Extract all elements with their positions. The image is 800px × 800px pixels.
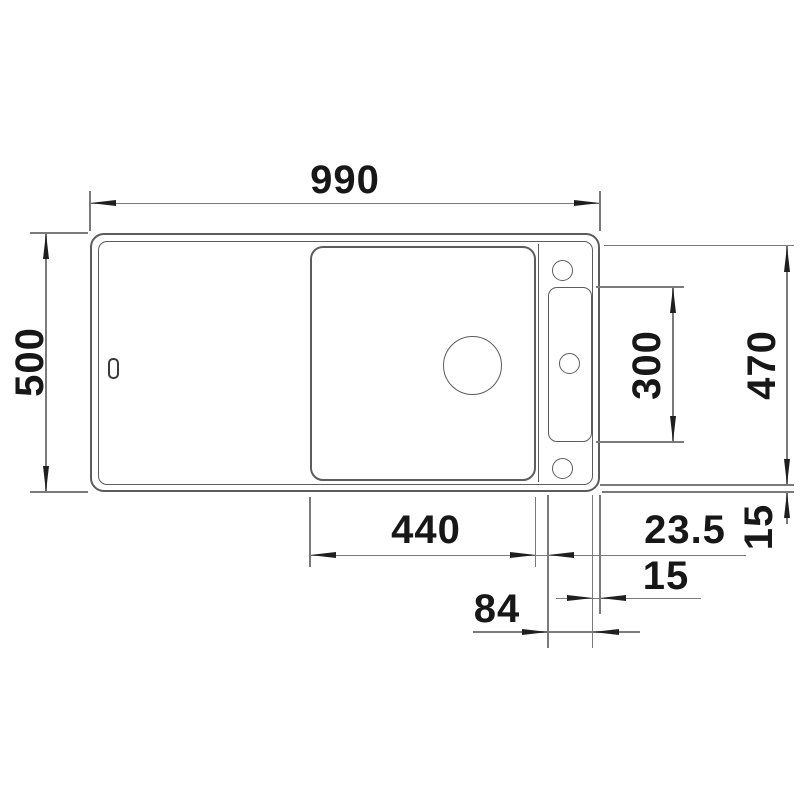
arrowhead-up <box>784 492 790 518</box>
arrowhead-right <box>574 200 600 206</box>
arrowhead-left <box>600 595 626 601</box>
arrowhead-left <box>310 552 336 558</box>
extension-line <box>547 495 549 648</box>
arrowhead-left <box>90 200 116 206</box>
tap-ledge-divider-line <box>538 244 540 482</box>
tap-hole-bottom <box>552 458 573 479</box>
arrowhead-left <box>548 552 574 558</box>
extension-line <box>89 191 91 231</box>
arrowhead-down <box>784 459 790 485</box>
dimension-label: 15 <box>739 504 779 551</box>
dimension-label: 15 <box>643 556 690 596</box>
extension-line <box>604 245 794 247</box>
dimension-label: 500 <box>10 327 50 397</box>
extension-line <box>600 484 794 486</box>
arrowhead-right <box>522 629 548 635</box>
tap-hole-middle <box>559 353 580 374</box>
extension-line <box>30 232 88 234</box>
dimension-label: 84 <box>474 589 521 629</box>
arrowhead-down <box>43 466 49 492</box>
extension-line <box>592 495 594 648</box>
extension-line <box>30 491 88 493</box>
sink-bowl <box>310 246 536 481</box>
dimension-label: 990 <box>310 160 380 200</box>
dimension-label: 300 <box>627 330 667 400</box>
arrowhead-up <box>670 287 676 313</box>
dimension-line <box>786 246 788 486</box>
arrowhead-right <box>567 595 593 601</box>
arrowhead-up <box>784 246 790 272</box>
overflow-slot <box>108 358 119 379</box>
sink-dimension-drawing: 990 500 470 300 440 23.5 <box>0 0 800 800</box>
arrowhead-left <box>593 629 619 635</box>
dimension-line <box>90 203 600 205</box>
drain-hole <box>443 336 502 395</box>
dimension-label: 440 <box>391 510 461 550</box>
dimension-label: 470 <box>742 330 782 400</box>
arrowhead-right <box>510 552 536 558</box>
arrowhead-down <box>670 416 676 442</box>
arrowhead-up <box>43 233 49 259</box>
extension-line <box>599 191 601 231</box>
extension-line <box>602 491 794 493</box>
dimension-label: 23.5 <box>644 510 726 550</box>
tap-hole-top <box>552 260 573 281</box>
